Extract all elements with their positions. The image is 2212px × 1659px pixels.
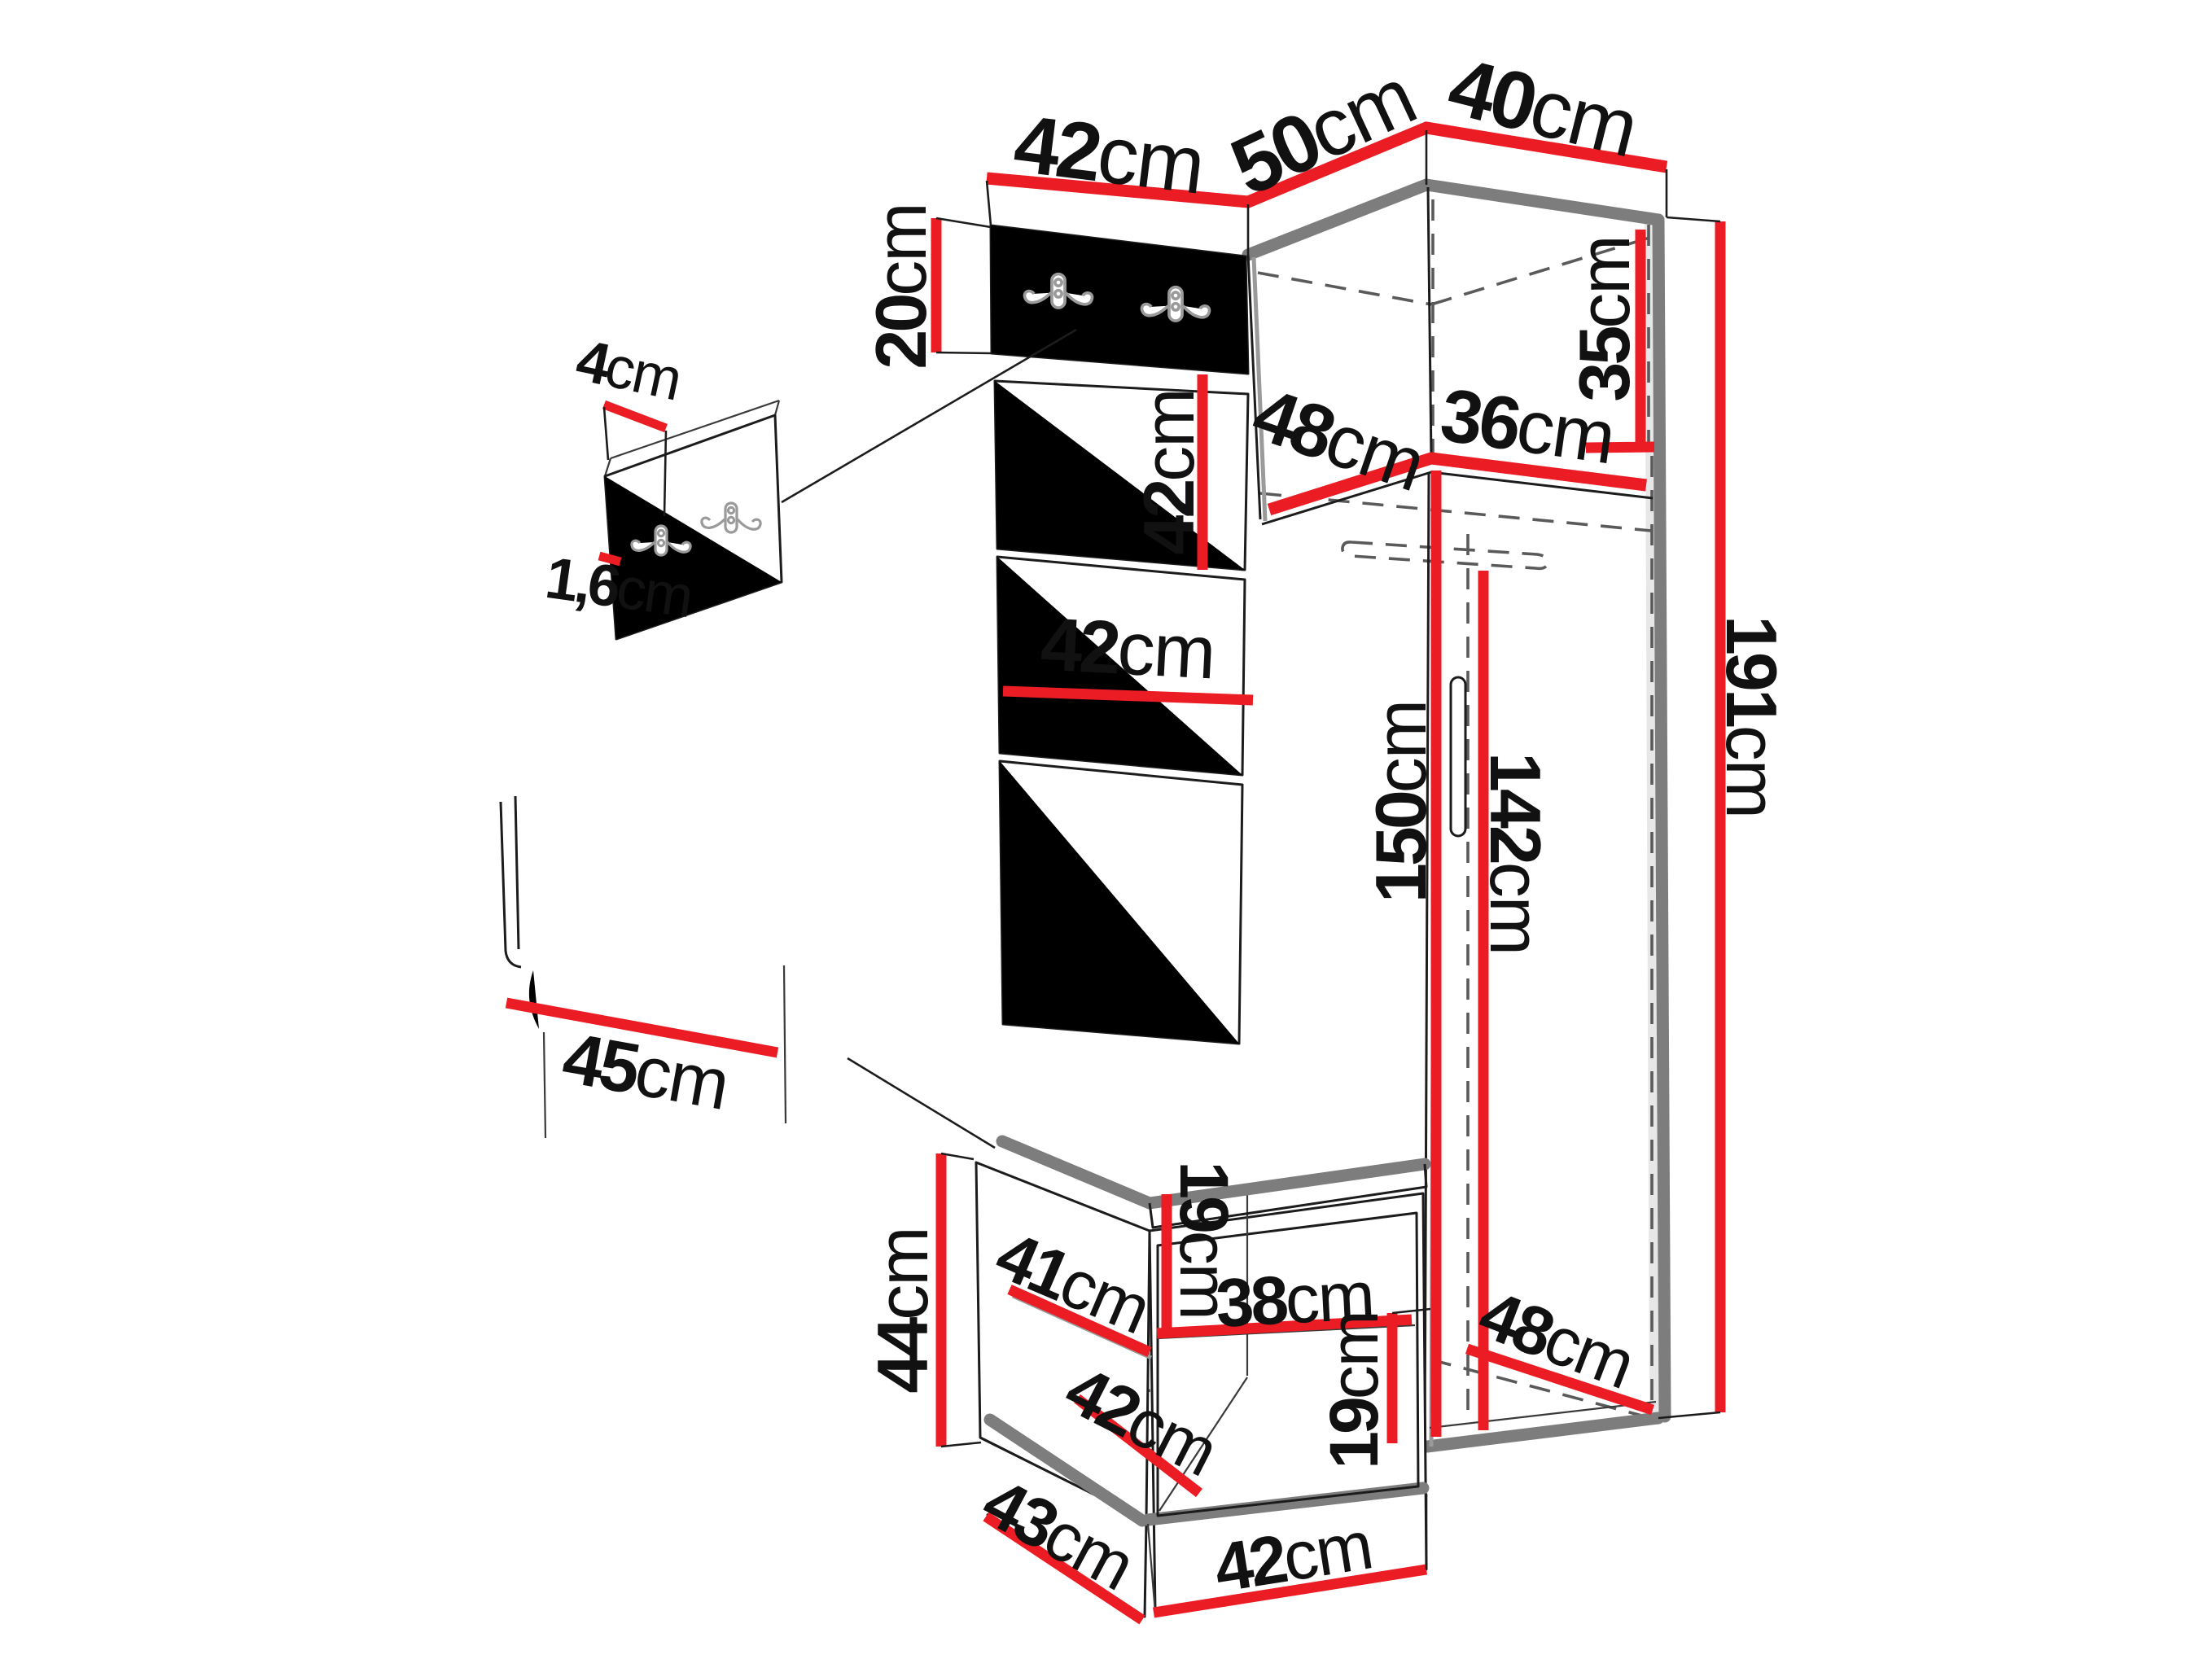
dimension-label-interior-height-left: 150cm [1360,701,1441,903]
dimension-label-niche-height: 35cm [1564,236,1645,401]
dimension-label-panel-width: 42cm [1039,602,1216,694]
wardrobe-right-edge [1658,220,1665,1416]
dimension-label-hook-board-height: 20cm [861,204,941,369]
dimension-label-interior-height-right: 142cm [1476,752,1557,954]
dimension-label-bench-opening-lower: 19cm [1316,1311,1392,1469]
dimension-label-bench-height: 44cm [862,1228,943,1393]
dimension-label-total-height: 191cm [1712,615,1793,817]
diagram-page: 42cm 50cm 40cm 20cm 4cm 1,6cm 42cm 48cm … [0,0,2212,1659]
dimension-label-panel-height: 42cm [1128,389,1209,554]
furniture-dimension-diagram: 42cm 50cm 40cm 20cm 4cm 1,6cm 42cm 48cm … [0,0,2212,1659]
